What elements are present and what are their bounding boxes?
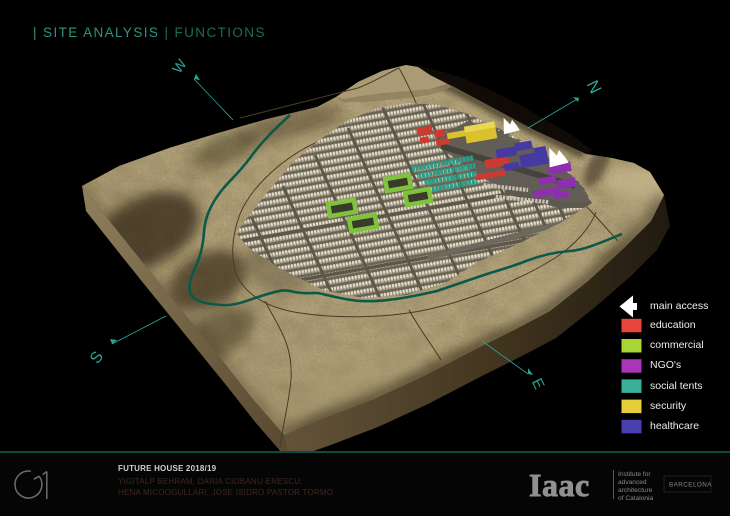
svg-text:BARCELONA: BARCELONA: [669, 482, 712, 489]
svg-text:of Catalonia: of Catalonia: [618, 495, 654, 502]
svg-text:Institute for: Institute for: [618, 471, 651, 478]
svg-text:architecture: architecture: [618, 487, 653, 494]
svg-text:advanced: advanced: [618, 479, 647, 486]
svg-text:Iaac: Iaac: [529, 467, 590, 503]
